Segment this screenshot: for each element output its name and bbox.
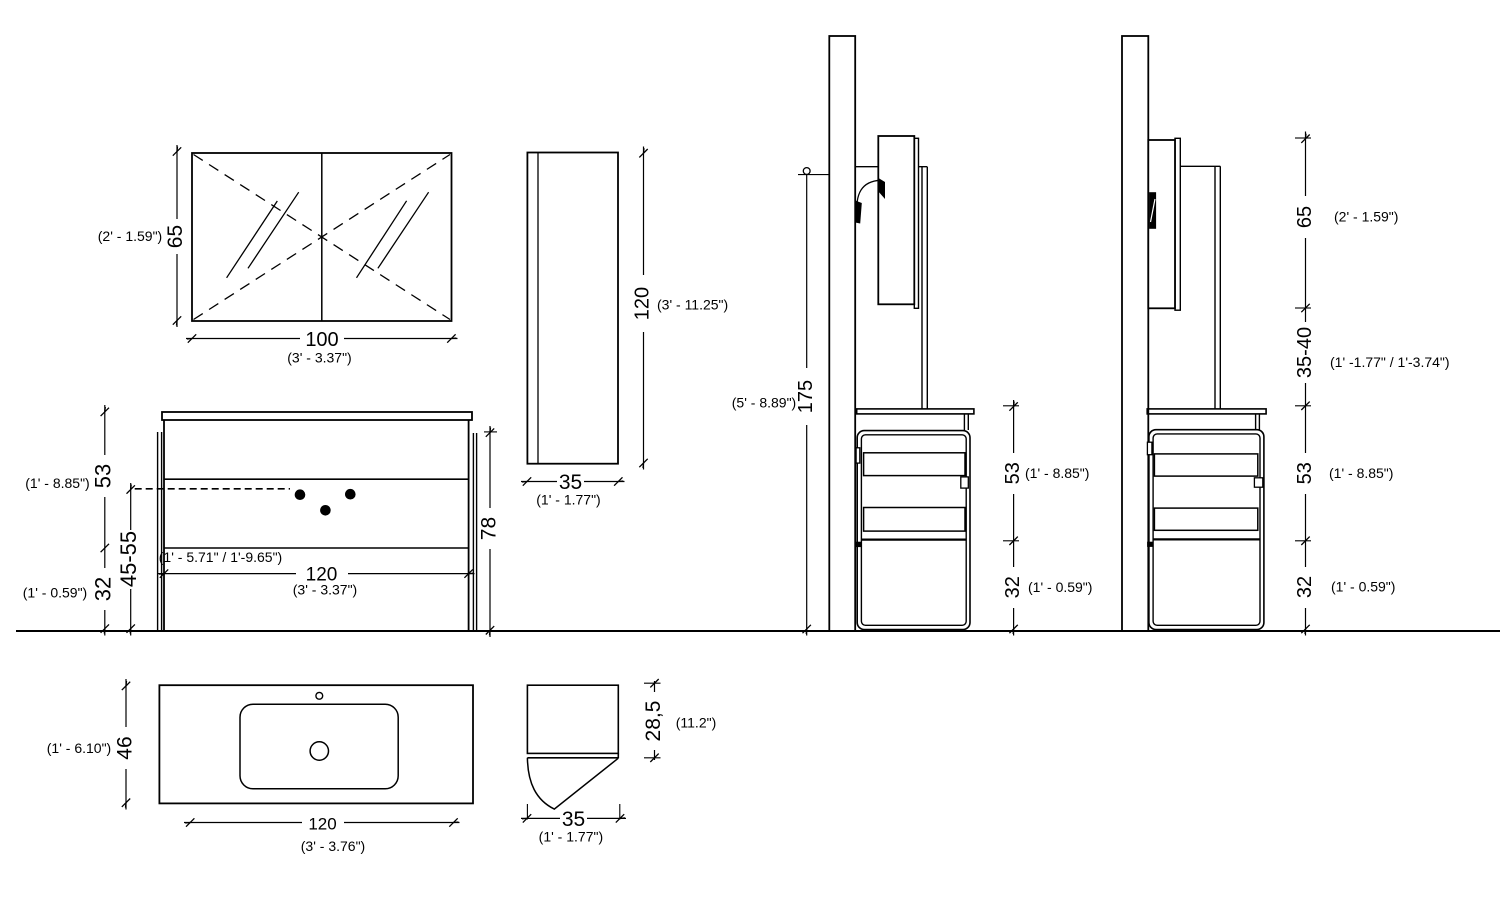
svg-text:32: 32 xyxy=(91,577,116,601)
svg-text:(1' - 6.10"): (1' - 6.10") xyxy=(47,740,111,756)
svg-text:100: 100 xyxy=(305,329,338,351)
svg-text:45-55: 45-55 xyxy=(116,531,141,587)
svg-text:78: 78 xyxy=(478,517,501,540)
svg-text:(3' - 3.37"): (3' - 3.37") xyxy=(287,350,351,366)
svg-text:32: 32 xyxy=(1002,576,1024,598)
svg-text:(1' -1.77" / 1'-3.74"): (1' -1.77" / 1'-3.74") xyxy=(1330,354,1450,370)
svg-text:175: 175 xyxy=(795,380,817,413)
svg-text:(3' - 3.76"): (3' - 3.76") xyxy=(301,838,365,854)
svg-text:53: 53 xyxy=(91,464,116,488)
svg-text:28,5: 28,5 xyxy=(642,701,665,742)
svg-text:35: 35 xyxy=(562,808,585,831)
svg-text:(1' - 1.77"): (1' - 1.77") xyxy=(536,492,600,508)
svg-text:65: 65 xyxy=(164,225,187,248)
svg-text:(1' - 0.59"): (1' - 0.59") xyxy=(1028,579,1092,595)
svg-text:(1' - 8.85"): (1' - 8.85") xyxy=(25,475,89,491)
svg-text:(1' - 0.59"): (1' - 0.59") xyxy=(1331,579,1395,595)
svg-text:35-40: 35-40 xyxy=(1294,327,1316,378)
svg-text:120: 120 xyxy=(308,815,336,834)
svg-text:120: 120 xyxy=(632,287,654,320)
svg-text:46: 46 xyxy=(113,736,136,759)
svg-text:(1' - 1.77"): (1' - 1.77") xyxy=(539,829,603,845)
svg-text:(1' - 5.71" / 1'-9.65"): (1' - 5.71" / 1'-9.65") xyxy=(159,549,282,565)
svg-text:32: 32 xyxy=(1294,576,1316,598)
svg-text:(11.2"): (11.2") xyxy=(676,715,717,731)
svg-text:53: 53 xyxy=(1294,462,1316,484)
svg-text:53: 53 xyxy=(1002,462,1024,484)
svg-text:(1' - 0.59"): (1' - 0.59") xyxy=(23,585,87,601)
svg-text:(3' - 11.25"): (3' - 11.25") xyxy=(657,297,728,313)
svg-text:(2' - 1.59"): (2' - 1.59") xyxy=(1334,209,1398,225)
svg-text:65: 65 xyxy=(1294,206,1316,228)
svg-text:(1' - 8.85"): (1' - 8.85") xyxy=(1025,465,1089,481)
svg-text:(2' - 1.59"): (2' - 1.59") xyxy=(98,228,162,244)
svg-text:(1' - 8.85"): (1' - 8.85") xyxy=(1329,465,1393,481)
svg-text:(3' - 3.37"): (3' - 3.37") xyxy=(293,582,357,598)
svg-text:(5' - 8.89"): (5' - 8.89") xyxy=(732,395,796,411)
